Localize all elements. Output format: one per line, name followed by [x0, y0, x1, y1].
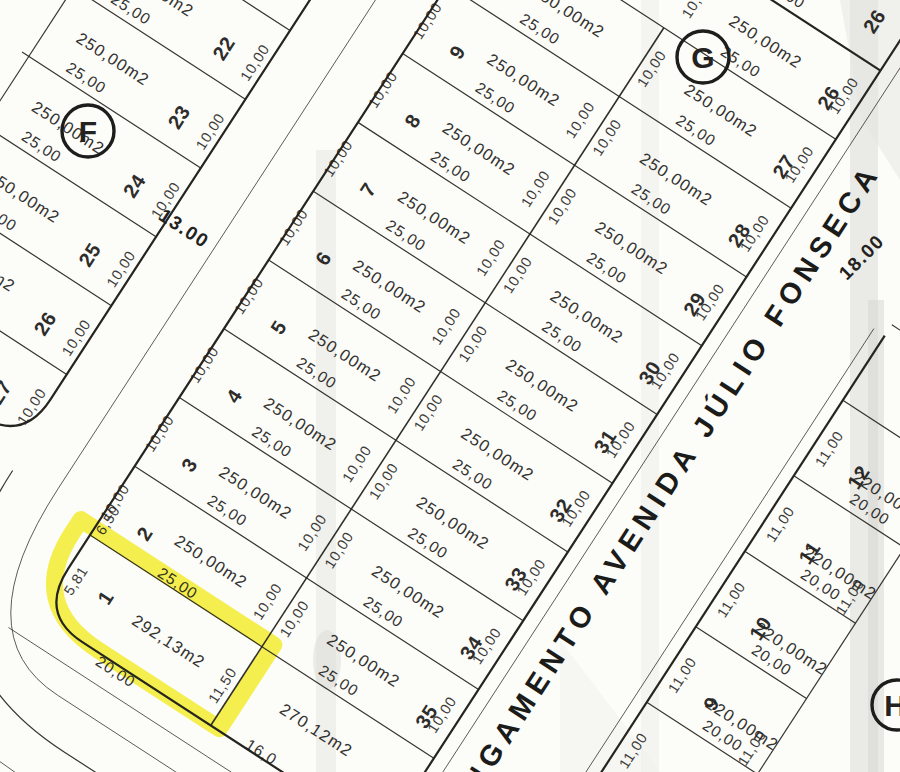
lot-number: 7: [356, 179, 381, 201]
dim-label: 25,00: [339, 285, 385, 323]
lot-number: 1: [93, 587, 118, 609]
dim-label: 10,00: [562, 99, 597, 142]
block-g-left-labels: 250,00m2 250,00m2 250,00m2 250,00m2 250,…: [97, 0, 638, 623]
dim-label: 10,00: [455, 322, 490, 365]
dim-label: 25,00: [155, 564, 201, 602]
lot-number: 23: [163, 101, 194, 132]
dim-label: 25,00: [19, 128, 65, 166]
dim-label: 11,00: [665, 654, 700, 696]
lot-number: 5: [266, 316, 291, 338]
dim-label: 25,00: [718, 43, 764, 81]
dim-label: 10,00: [428, 305, 463, 348]
dim-label: 25,00: [63, 59, 109, 97]
lot-number: 24: [119, 170, 150, 202]
lot-number: 3: [177, 454, 202, 476]
dim-label: 25,00: [517, 10, 563, 48]
dim-label: 25,00: [673, 111, 719, 149]
dim-label: 25,00: [495, 386, 541, 424]
dim-label: 11,00: [714, 579, 749, 621]
dim-label: 25,00: [249, 423, 295, 461]
dim-label: 10,00: [366, 460, 401, 503]
lot-number: 26: [29, 308, 60, 339]
dim-label: 25,00: [361, 593, 407, 631]
lot-number: 4: [222, 385, 247, 407]
dim-label: 10,00: [14, 385, 49, 428]
street-width-label: 13.00: [155, 205, 213, 253]
dim-label: 10,00: [679, 0, 714, 21]
dim-label: 25,00: [405, 524, 451, 562]
lot-number: 25: [74, 239, 105, 270]
lot-number: 8: [400, 110, 425, 132]
dim-label: 25,00: [539, 318, 585, 356]
dim-label: 10,00: [339, 443, 374, 486]
dim-label: 10,00: [142, 412, 177, 455]
dim-label: 11,00: [763, 503, 798, 545]
dim-label: 25,00: [450, 455, 496, 493]
dim-label: 25,00: [584, 249, 630, 287]
dim-label: 10,00: [276, 206, 311, 249]
dim-label: 10,00: [186, 343, 221, 386]
dim-label: 10,00: [384, 374, 419, 417]
dim-label: 16,0: [243, 735, 281, 768]
dim-label: 10,00: [103, 248, 138, 291]
dim-label: 10,00: [277, 598, 312, 641]
dim-label: 25,00: [383, 216, 429, 254]
dim-label: 10,00: [411, 391, 446, 434]
dim-label: 10,00: [589, 116, 624, 159]
dim-label: 10,00: [250, 580, 285, 623]
dim-label: 10,00: [365, 68, 400, 111]
map-rotated-group: 250,00m2 250,00m2 250,00m2 250,00m2 250,…: [0, 0, 900, 772]
dim-label: 25,00: [428, 148, 474, 186]
dim-label: 10,00: [59, 316, 94, 359]
dim-label: 10,00: [237, 41, 272, 84]
lot-number: 2: [132, 523, 157, 545]
lot1-area-label: 292,13m2: [129, 611, 208, 671]
dim-label: 10,00: [410, 0, 445, 42]
block-f-labels: 250,00m2 250,00m2 250,00m2 250,00m2 250,…: [0, 0, 299, 428]
dim-label: 11,00: [812, 428, 847, 470]
block-f-letter: F: [79, 115, 97, 148]
dim-label: 10,00: [518, 167, 553, 210]
block-h-letter: H: [884, 689, 900, 722]
lot-number: 27: [0, 376, 16, 407]
dim-label: 10,00: [231, 275, 266, 318]
dim-label: 25,00: [473, 79, 519, 117]
lot-number: 9: [445, 41, 470, 63]
dim-label: 10,00: [500, 254, 535, 297]
plat-map-canvas: 250,00m2 250,00m2 250,00m2 250,00m2 250,…: [0, 0, 900, 772]
lot-number: 22: [208, 33, 239, 64]
dim-label: 25,00: [205, 491, 251, 529]
scanned-plat-map: 250,00m2 250,00m2 250,00m2 250,00m2 250,…: [0, 0, 900, 772]
dim-label: 10,00: [473, 236, 508, 279]
dim-label: 10,00: [193, 110, 228, 153]
block-g-letter: G: [691, 41, 714, 74]
dim-label: 10,00: [545, 185, 580, 228]
dim-label: 5,81: [61, 563, 92, 598]
